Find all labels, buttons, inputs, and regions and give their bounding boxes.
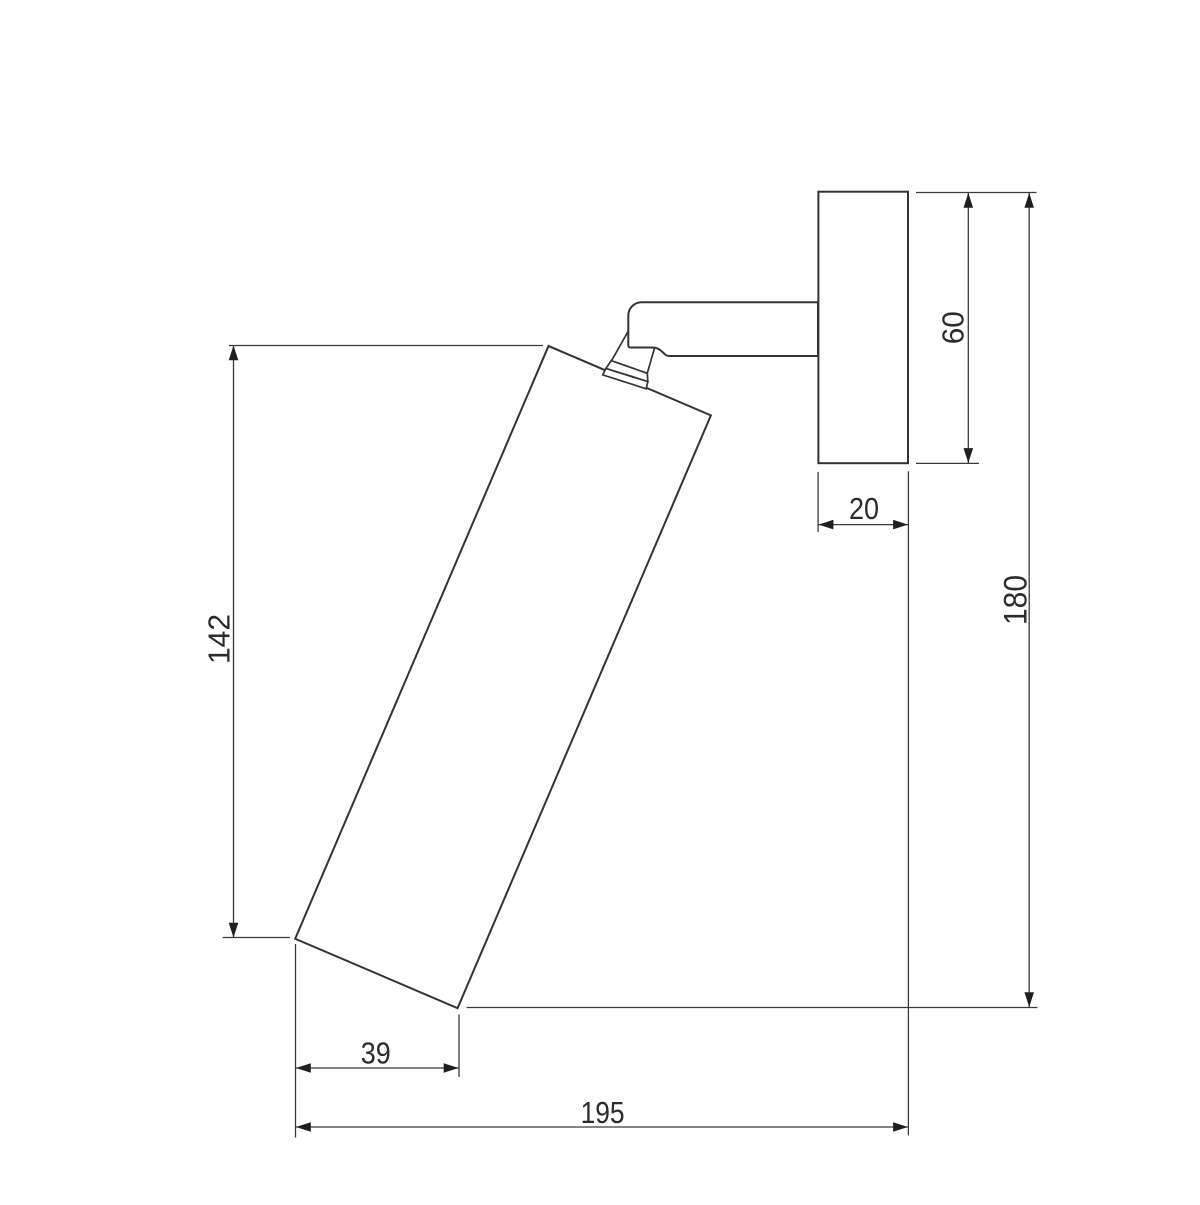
svg-text:60: 60: [936, 311, 971, 344]
svg-text:39: 39: [361, 1036, 391, 1071]
svg-text:195: 195: [581, 1095, 625, 1130]
svg-text:142: 142: [202, 614, 237, 664]
svg-text:20: 20: [849, 491, 879, 526]
svg-text:180: 180: [998, 575, 1034, 625]
